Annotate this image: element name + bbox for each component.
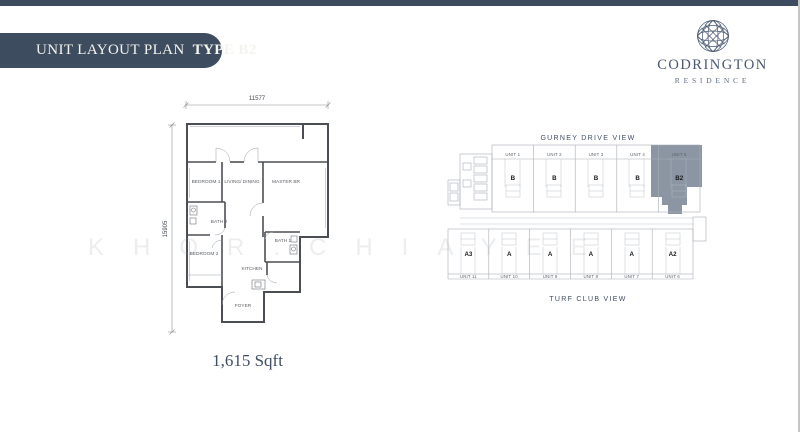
unit8-type: A (589, 251, 594, 258)
dim-width-label: 11577 (249, 96, 266, 102)
unit3-type: B (594, 175, 599, 182)
site-key-plan: GURNEY DRIVE VIEW (430, 125, 725, 310)
unit6-type: A2 (669, 251, 677, 258)
room-label-foyer: FOYER (235, 303, 252, 309)
unit9-label: UNIT 9 (543, 274, 558, 279)
unit2-type: B (552, 175, 557, 182)
room-label-bath1: BATH 1 (275, 238, 292, 244)
unit2-label: UNIT 2 (547, 152, 562, 157)
unit10-type: A (507, 251, 512, 258)
unit-type-label: TYPE B2 (193, 42, 257, 59)
fixtures (190, 206, 297, 289)
room-label-kitchen: KITCHEN (241, 266, 263, 272)
room-label-master-br: MASTER BR (272, 179, 301, 185)
dim-height-label: 15905 (163, 220, 169, 237)
bottom-row-lines (448, 217, 706, 279)
unit7-label: UNIT 7 (624, 274, 639, 279)
dimension-height (168, 123, 176, 335)
brand-subtitle: RESIDENCE (630, 76, 795, 85)
unit4-label: UNIT 4 (630, 152, 645, 157)
brand-name: CODRINGTON (630, 57, 795, 74)
service-core (448, 154, 492, 209)
window-lines (187, 127, 326, 282)
page-title-banner: UNIT LAYOUT PLAN TYPE B2 (0, 33, 222, 68)
corridor-lines (460, 218, 693, 224)
room-label-bedroom2: BEDROOM 2 (190, 251, 219, 257)
floor-plan: 11577 15905 (150, 83, 345, 353)
bottom-view-label: TURF CLUB VIEW (549, 296, 626, 303)
room-label-bath2: BATH 2 (211, 219, 228, 225)
room-label-bedroom1: BEDROOM 1 (192, 179, 221, 185)
unit5-type-b2: B2 (675, 175, 683, 182)
unit-outline (187, 124, 328, 322)
unit1-label: UNIT 1 (505, 152, 520, 157)
unit9-type: A (548, 251, 553, 258)
unit1-type: B (511, 175, 516, 182)
dimension-width (184, 101, 331, 109)
brand-logo: CODRINGTON RESIDENCE (630, 18, 795, 85)
unit6-label: UNIT 6 (665, 274, 680, 279)
unit4-type: B (635, 175, 640, 182)
sphere-ornament-icon (695, 18, 731, 54)
page-title: UNIT LAYOUT PLAN (36, 42, 185, 59)
top-view-label: GURNEY DRIVE VIEW (540, 135, 635, 142)
room-label-living-dining: LIVING/ DINING (224, 179, 259, 185)
unit10-label: UNIT 10 (501, 274, 519, 279)
unit3-label: UNIT 3 (589, 152, 604, 157)
unit11-type: A3 (464, 251, 472, 258)
top-border (0, 0, 800, 6)
unit-area: 1,615 Sqft (150, 351, 345, 371)
unit7-type: A (629, 251, 634, 258)
unit8-label: UNIT 8 (584, 274, 599, 279)
unit11-label: UNIT 11 (460, 274, 477, 279)
unit5-label: UNIT 5 (672, 152, 687, 157)
